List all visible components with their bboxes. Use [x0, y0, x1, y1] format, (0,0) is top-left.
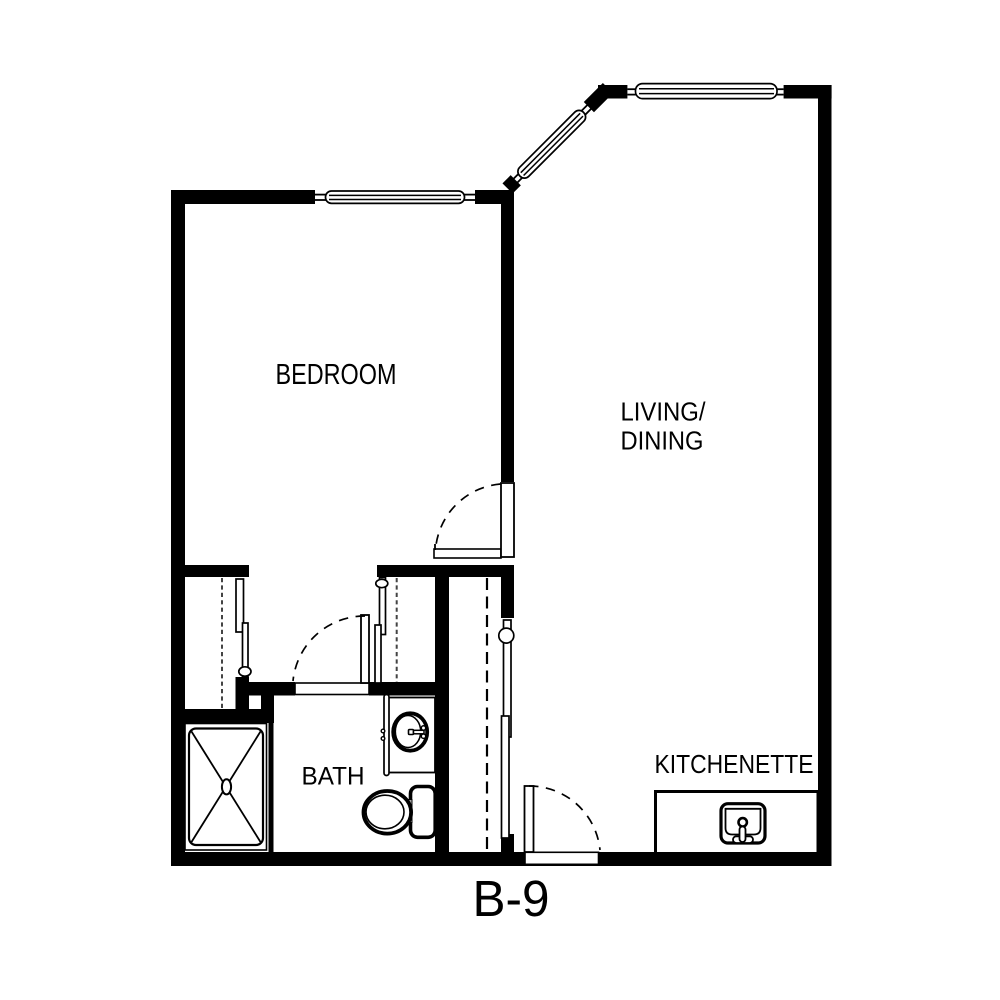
svg-text:B-9: B-9	[473, 870, 550, 927]
svg-text:BEDROOM: BEDROOM	[276, 359, 397, 391]
svg-text:LIVING/: LIVING/	[621, 397, 707, 427]
svg-text:KITCHENETTE: KITCHENETTE	[655, 749, 814, 779]
svg-text:DINING: DINING	[621, 425, 704, 455]
svg-text:BATH: BATH	[302, 763, 365, 791]
